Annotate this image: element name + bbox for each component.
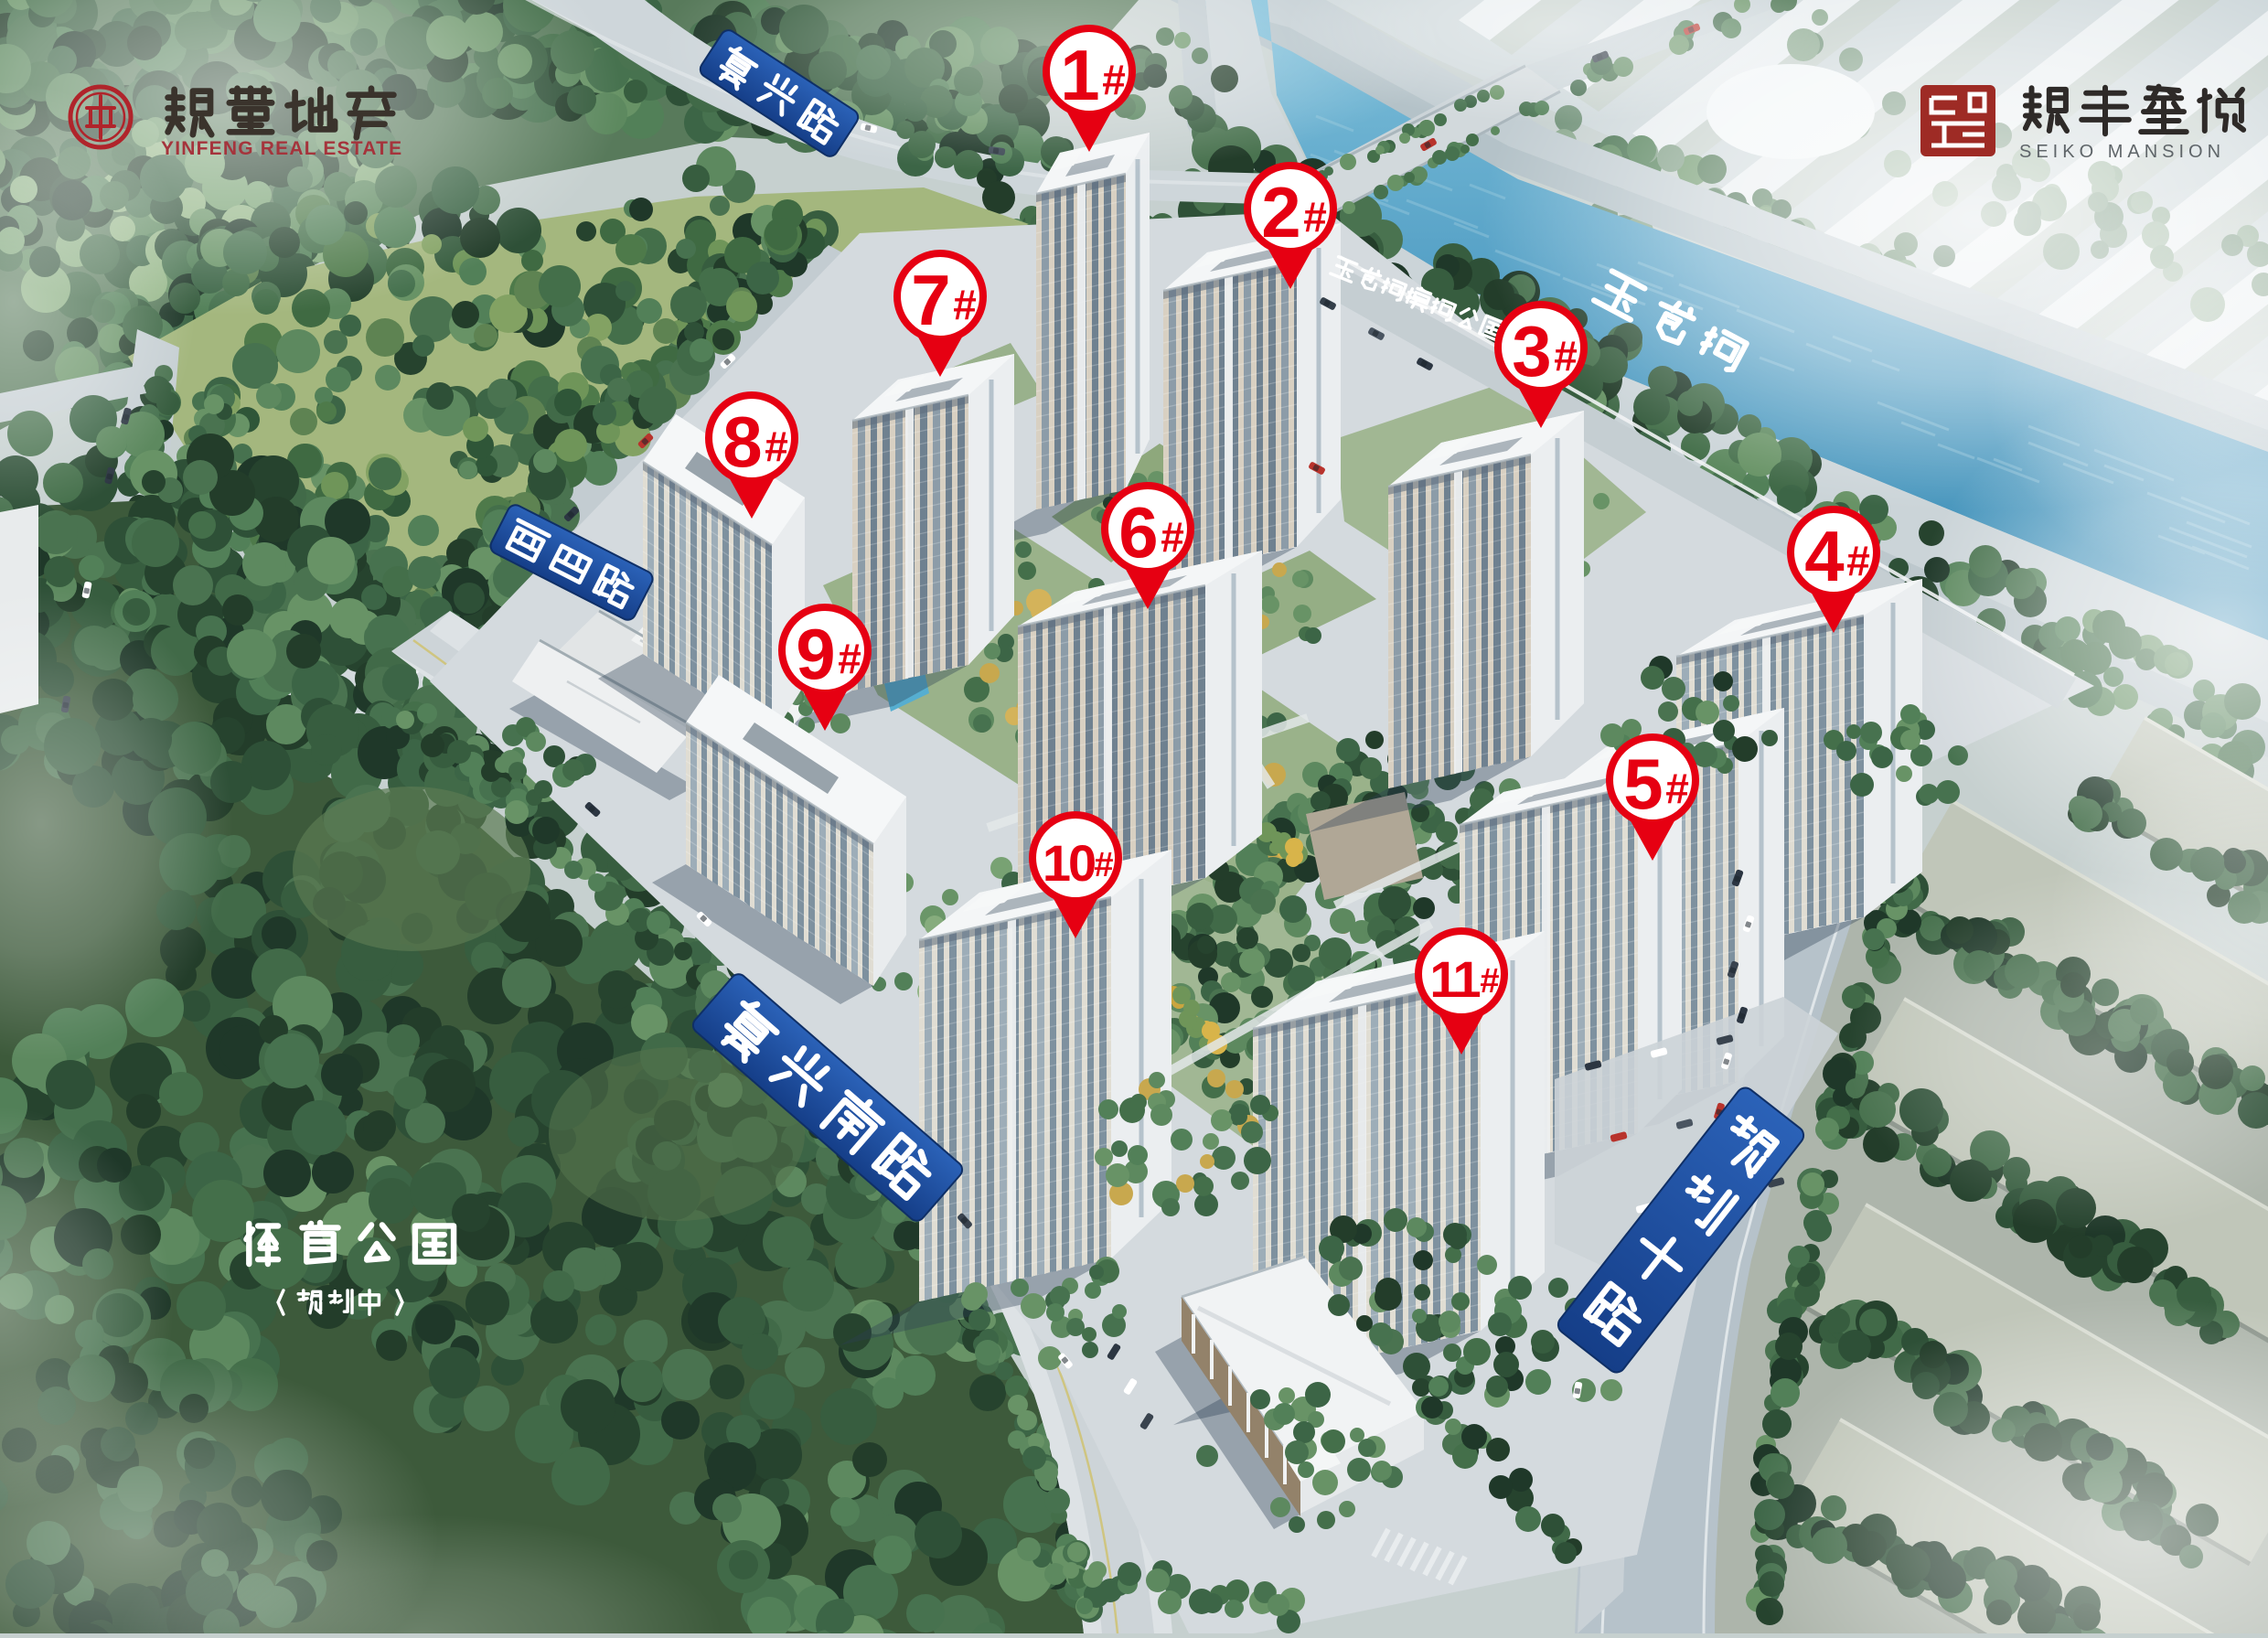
svg-text:#: # [1554, 332, 1578, 380]
svg-text:3: 3 [1512, 311, 1551, 391]
svg-text:#: # [1480, 962, 1499, 1001]
svg-text:10: 10 [1043, 834, 1095, 892]
svg-text:#: # [1303, 193, 1327, 241]
svg-text:YINFENG REAL ESTATE: YINFENG REAL ESTATE [161, 138, 402, 159]
svg-text:6: 6 [1118, 492, 1158, 573]
svg-text:#: # [1102, 56, 1126, 103]
svg-text:8: 8 [722, 401, 762, 482]
svg-text:#: # [838, 635, 861, 682]
svg-text:4: 4 [1804, 516, 1844, 596]
svg-text:7: 7 [911, 260, 950, 340]
svg-text:11: 11 [1429, 950, 1480, 1008]
svg-text:5: 5 [1623, 744, 1663, 824]
svg-text:SEIKO MANSION: SEIKO MANSION [2019, 142, 2225, 162]
svg-text:#: # [1161, 513, 1184, 561]
svg-text:1: 1 [1060, 35, 1099, 115]
svg-text:9: 9 [796, 614, 835, 694]
svg-text:#: # [1665, 765, 1689, 812]
svg-text:2: 2 [1261, 172, 1300, 252]
svg-text:#: # [953, 281, 977, 328]
svg-text:#: # [1846, 537, 1870, 584]
svg-text:#: # [765, 423, 788, 470]
svg-text:#: # [1094, 846, 1113, 884]
